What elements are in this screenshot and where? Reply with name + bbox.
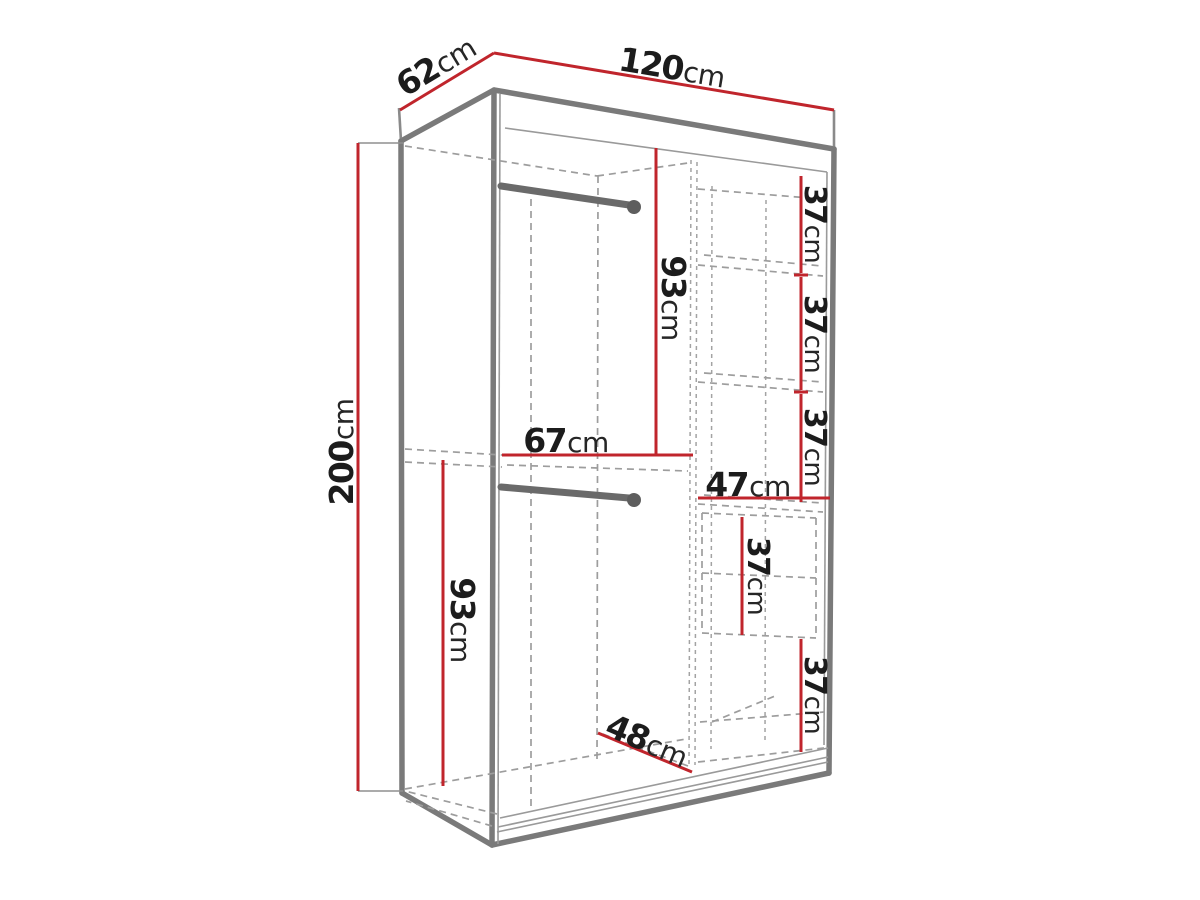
upper-rail-end-knob — [627, 200, 641, 214]
label-right-47-value: 47 — [705, 465, 748, 504]
drawer-bottom-edge — [702, 633, 816, 638]
label-upper-93-value: 93 — [654, 255, 693, 298]
label-lower-section-93: 93cm — [443, 577, 482, 663]
label-shelf-3-unit: cm — [798, 448, 828, 487]
right-floor-front-edge — [698, 748, 824, 762]
shelf-3-front-edge — [698, 504, 823, 512]
label-bottom-shelf-37: 37cm — [797, 656, 832, 734]
front-left-edge — [492, 90, 494, 845]
drawer-top-edge — [702, 513, 816, 518]
front-left-inner-edge — [498, 94, 500, 844]
label-lower-93-unit: cm — [444, 621, 477, 663]
mid-divider-left-1 — [405, 449, 502, 455]
back-top-edge — [405, 146, 597, 176]
upper-rail-rod — [501, 186, 629, 205]
label-left-67-value: 67 — [523, 421, 566, 460]
label-right-section-47: 47cm — [705, 465, 791, 504]
label-left-section-67: 67cm — [523, 421, 609, 460]
lower-rail-end-knob — [627, 493, 641, 507]
lower-rail-rod — [501, 487, 629, 498]
partition-front-line-1 — [689, 160, 691, 767]
interior-top-edge — [505, 128, 827, 172]
partition-back-hidden-edge — [597, 176, 598, 764]
mid-divider-left-2 — [405, 462, 502, 467]
label-upper-section-93: 93cm — [654, 255, 693, 341]
hanging-rail-lower — [501, 487, 641, 507]
back-top-depth-diagonal — [597, 163, 688, 176]
wardrobe-dimension-diagram: 62cm 120cm 200cm 93cm 67cm 47cm 37cm 37c… — [0, 0, 1200, 900]
label-drawer-37-unit: cm — [741, 577, 771, 616]
label-shelf-gap-3-37: 37cm — [797, 408, 832, 486]
plinth-line-3 — [497, 762, 828, 832]
plinth-line-2 — [498, 757, 828, 827]
dimension-labels: 62cm 120cm 200cm 93cm 67cm 47cm 37cm 37c… — [322, 27, 832, 775]
label-drawer-section-37: 37cm — [740, 537, 775, 615]
hanging-rail-upper — [501, 186, 641, 214]
shelf-2-back-edge — [704, 373, 822, 382]
label-bottom-37-unit: cm — [798, 696, 828, 735]
label-width-120-unit: cm — [681, 55, 728, 94]
label-shelf-3-value: 37 — [797, 408, 832, 447]
label-shelf-2-value: 37 — [797, 295, 832, 334]
label-width-120-value: 120 — [616, 39, 686, 88]
label-depth-62: 62cm — [389, 27, 482, 105]
label-upper-93-unit: cm — [655, 299, 688, 341]
label-height-200: 200cm — [322, 398, 361, 505]
label-right-47-unit: cm — [749, 470, 791, 503]
label-bottom-37-value: 37 — [797, 656, 832, 695]
label-shelf-1-value: 37 — [797, 185, 832, 224]
label-left-67-unit: cm — [567, 426, 609, 459]
diagram-canvas: 62cm 120cm 200cm 93cm 67cm 47cm 37cm 37c… — [0, 0, 1200, 900]
label-shelf-gap-2-37: 37cm — [797, 295, 832, 373]
label-height-200-value: 200 — [322, 441, 361, 506]
label-shelf-2-unit: cm — [798, 335, 828, 374]
label-floor-depth-48: 48cm — [600, 706, 694, 775]
label-drawer-37-value: 37 — [740, 537, 775, 576]
back-left-edge — [401, 141, 402, 793]
top-panel-left-cap — [399, 108, 401, 141]
label-height-200-unit: cm — [327, 398, 360, 440]
label-shelf-1-unit: cm — [798, 225, 828, 264]
partition-front-line-2 — [695, 162, 697, 765]
label-width-120: 120cm — [616, 39, 728, 95]
label-lower-93-value: 93 — [443, 577, 482, 620]
label-shelf-gap-1-37: 37cm — [797, 185, 832, 263]
